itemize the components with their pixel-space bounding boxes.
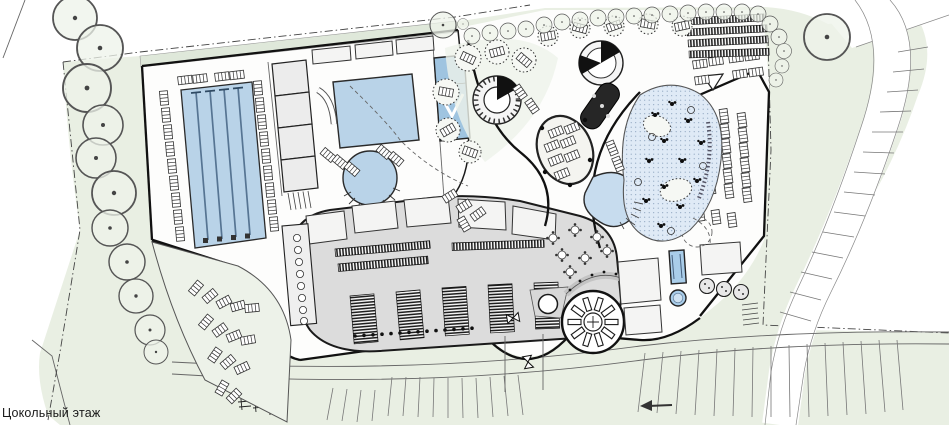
plan-drawing [0, 0, 949, 425]
round-spa-pool [579, 41, 623, 85]
round-room [539, 295, 558, 314]
spiral-pool [473, 76, 521, 124]
lap-pool [181, 82, 266, 248]
floor-label: Цокольный этаж [2, 406, 100, 420]
site-plan: Цокольный этаж [0, 0, 949, 425]
round-pool [343, 151, 397, 205]
whirlpool-sun-wheel [562, 291, 624, 353]
leisure-pool [333, 74, 419, 148]
